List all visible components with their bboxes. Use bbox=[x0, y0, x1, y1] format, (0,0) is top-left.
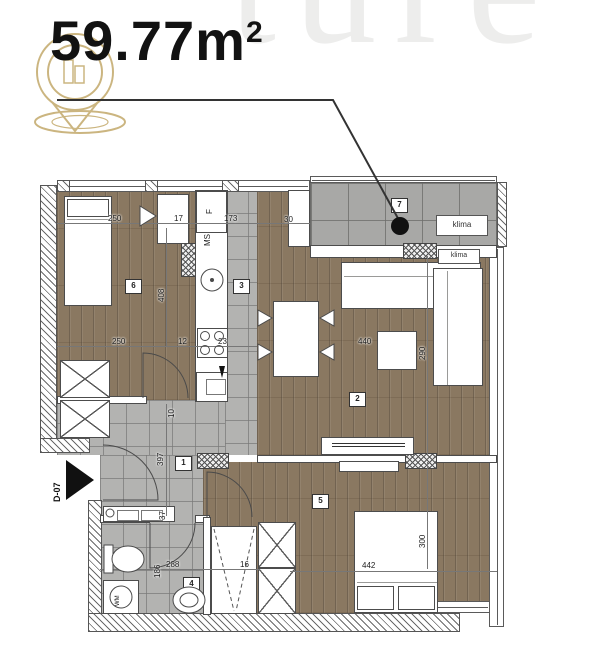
dim-12: 12 bbox=[178, 338, 187, 346]
window-bottom-right bbox=[430, 601, 490, 613]
area-exponent: 2 bbox=[246, 16, 264, 49]
room-label-terrace: 7 bbox=[391, 198, 408, 213]
dim-bed1-250-top: 250 bbox=[108, 215, 121, 223]
dim-hall-10: 10 bbox=[168, 402, 176, 418]
floor-kitchen bbox=[225, 190, 257, 455]
dim-bath-288: 288 bbox=[166, 561, 179, 569]
floor-terrace bbox=[310, 182, 497, 246]
dim-line-hall-v bbox=[166, 404, 167, 516]
wardrobe-bedroom1 bbox=[60, 360, 110, 398]
wall-top-seg2 bbox=[145, 180, 158, 192]
dim-line-mid bbox=[57, 346, 257, 347]
washing-machine-label: WM bbox=[114, 588, 122, 606]
wall-bottom bbox=[88, 613, 460, 632]
wall-top-seg1 bbox=[57, 180, 70, 192]
closet-bedroom2-top bbox=[258, 522, 296, 568]
wall-bathroom-closet bbox=[203, 517, 211, 615]
column-terrace bbox=[403, 243, 437, 259]
fridge-label: F bbox=[206, 200, 214, 214]
column-living-bedroom2 bbox=[405, 453, 437, 469]
room-label-bedroom1: 6 bbox=[125, 279, 142, 294]
terrace-top-edge bbox=[310, 176, 497, 183]
room-label-bedroom2: 5 bbox=[312, 494, 329, 509]
desk-bedroom1 bbox=[157, 194, 189, 244]
dim-bath-186: 186 bbox=[154, 556, 162, 578]
entry-door-code: D-07 bbox=[52, 458, 62, 502]
window-right-wall bbox=[489, 247, 504, 627]
room-label-bathroom: 4 bbox=[183, 577, 200, 592]
dim-line-bedroom2-v bbox=[427, 462, 428, 569]
closet-bedroom2-bottom bbox=[258, 568, 296, 614]
floor-plan-page: ture 59.77m2 bbox=[0, 0, 600, 671]
dim-line-bath bbox=[100, 569, 260, 570]
room-label-hall: 1 bbox=[175, 456, 192, 471]
window-top-wall bbox=[57, 180, 310, 192]
wardrobe-hall bbox=[60, 400, 110, 438]
room-label-kitchen: 3 bbox=[233, 279, 250, 294]
kitchen-unit-label: MS bbox=[204, 228, 212, 246]
dim-living-290: 290 bbox=[419, 336, 427, 360]
kitchen-sink-cabinet bbox=[196, 372, 228, 402]
klima-unit-living: klima bbox=[438, 249, 480, 264]
dim-23: 23 bbox=[218, 338, 227, 346]
column-hall-bedroom2 bbox=[197, 453, 229, 469]
dim-hall-397: 397 bbox=[157, 440, 165, 466]
dim-living-440: 440 bbox=[358, 338, 371, 346]
dim-17: 17 bbox=[174, 215, 183, 223]
sofa-vertical bbox=[433, 268, 483, 386]
dim-line-living-v bbox=[427, 256, 428, 455]
dim-30: 30 bbox=[284, 216, 293, 224]
coffee-table bbox=[377, 331, 417, 370]
room-label-living: 2 bbox=[349, 392, 366, 407]
entry-arrow-icon bbox=[66, 460, 94, 500]
klima-unit-terrace: klima bbox=[436, 215, 488, 236]
dining-table bbox=[273, 301, 319, 377]
tv-stand-living bbox=[321, 437, 414, 455]
dim-bed1-408: 408 bbox=[158, 276, 166, 302]
column-bedroom1 bbox=[181, 243, 196, 277]
dim-bed2-300: 300 bbox=[419, 526, 427, 548]
pillow-bedroom1 bbox=[67, 199, 109, 217]
dim-hall-37: 37 bbox=[159, 504, 167, 520]
pillow-bedroom2-left bbox=[357, 586, 394, 610]
dim-bath-16: 16 bbox=[240, 561, 249, 569]
tv-shelf-bedroom2 bbox=[339, 461, 399, 472]
dim-line-bedroom1-v bbox=[166, 228, 167, 346]
dim-bed1-250-mid: 250 bbox=[112, 338, 125, 346]
dim-bed2-442: 442 bbox=[362, 562, 375, 570]
wall-right-terrace bbox=[497, 182, 507, 247]
dim-line-top bbox=[57, 223, 310, 224]
wall-left-step bbox=[40, 438, 90, 453]
dim-line-bedroom2 bbox=[290, 571, 497, 572]
dim-173: 173 bbox=[224, 215, 237, 223]
area-value: 59.77m bbox=[50, 9, 246, 72]
wall-left bbox=[40, 185, 57, 443]
closet-open bbox=[211, 526, 257, 614]
pillow-bedroom2-right bbox=[398, 586, 435, 610]
page-title: 59.77m2 bbox=[50, 8, 264, 73]
background-watermark-text: ture bbox=[230, 0, 559, 82]
